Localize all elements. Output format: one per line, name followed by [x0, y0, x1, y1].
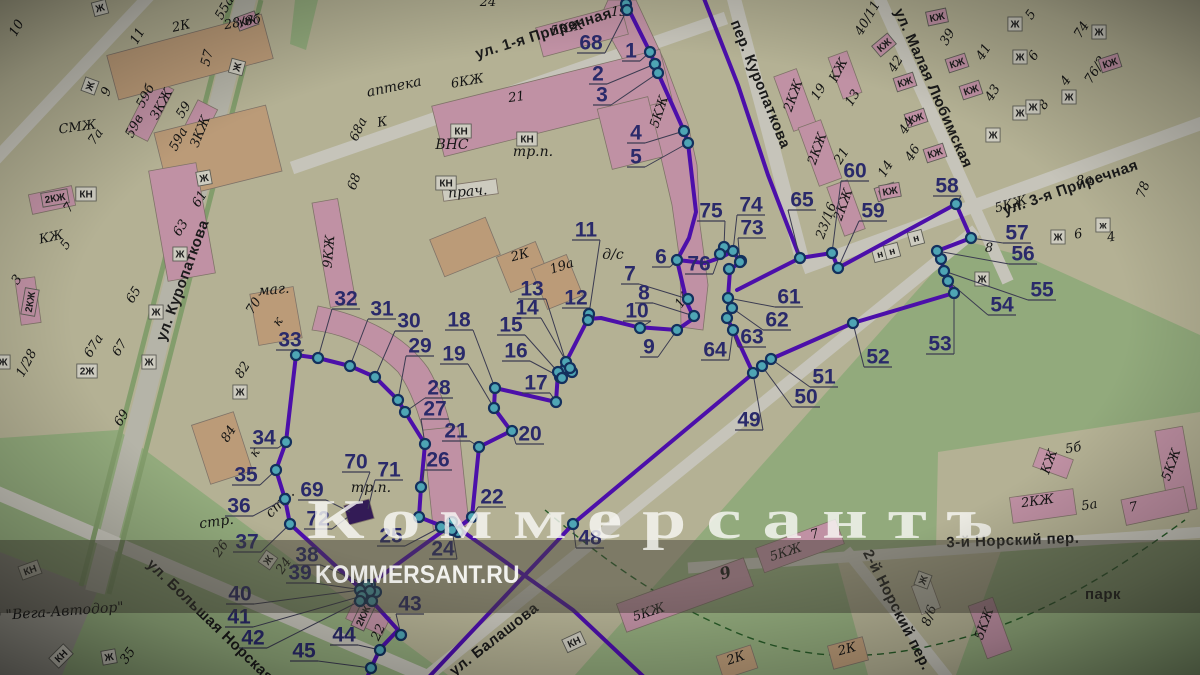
- route-point-number: 10: [625, 300, 648, 323]
- route-node: [370, 372, 380, 382]
- route-node: [645, 47, 655, 57]
- route-point-number: 17: [524, 372, 547, 395]
- route-point-number: 35: [234, 464, 258, 487]
- route-node: [414, 512, 424, 522]
- route-point-number: 19: [442, 343, 465, 366]
- route-point-number: 68: [579, 32, 603, 55]
- route-node: [757, 361, 767, 371]
- route-point-number: 27: [423, 398, 446, 421]
- route-point-number: 58: [935, 175, 959, 198]
- route-node: [474, 442, 484, 452]
- route-point-number: 40: [228, 583, 251, 606]
- house-label: Ж: [150, 308, 161, 319]
- house-number: 24: [479, 0, 497, 10]
- route-point-number: 48: [578, 527, 602, 550]
- route-point-number: 74: [739, 194, 763, 217]
- route-node: [551, 397, 561, 407]
- route-node: [683, 294, 693, 304]
- route-node: [653, 68, 663, 78]
- route-node: [724, 264, 734, 274]
- route-point-number: 51: [812, 366, 836, 389]
- route-point-number: 18: [447, 309, 471, 332]
- map-screenshot: ул. 1-я Приречнаяпер. Куропатковаул. Мал…: [0, 0, 1200, 675]
- house-label: Ж: [987, 131, 998, 142]
- route-point-number: 20: [518, 423, 541, 446]
- route-point-number: 24: [431, 538, 455, 561]
- route-point-number: 39: [288, 562, 311, 585]
- route-point-number: 29: [408, 335, 431, 358]
- route-point-number: 1: [625, 40, 637, 63]
- route-point-number: 33: [278, 329, 301, 352]
- route-node: [366, 663, 376, 673]
- route-point-number: 32: [334, 288, 357, 311]
- route-point-number: 76: [687, 253, 710, 276]
- route-point-number: 26: [426, 449, 449, 472]
- route-node: [723, 293, 733, 303]
- route-node: [436, 522, 446, 532]
- route-node: [939, 266, 949, 276]
- route-node: [489, 403, 499, 413]
- house-label: Ж: [234, 388, 245, 399]
- route-node: [291, 350, 301, 360]
- route-point-number: 22: [480, 486, 503, 509]
- route-node: [679, 126, 689, 136]
- route-point-number: 16: [504, 340, 527, 363]
- route-node: [557, 373, 567, 383]
- route-node: [400, 407, 410, 417]
- route-point-number: 11: [575, 219, 598, 242]
- route-node: [393, 395, 403, 405]
- route-point-number: 60: [843, 160, 866, 183]
- route-point-number: 5: [630, 146, 642, 169]
- route-point-number: 54: [990, 294, 1014, 317]
- route-node: [766, 354, 776, 364]
- route-point-number: 56: [1011, 243, 1034, 266]
- house-label: КН: [439, 179, 452, 190]
- route-point-number: 57: [1005, 222, 1028, 245]
- house-label: Ж: [1027, 103, 1038, 114]
- route-node: [672, 255, 682, 265]
- route-point-number: 53: [928, 333, 951, 356]
- route-point-number: 3: [596, 84, 608, 107]
- facility-label: д/с: [602, 247, 624, 263]
- route-point-number: 52: [866, 346, 889, 369]
- facility-label: маг.: [257, 281, 290, 300]
- street-name: парк: [1085, 586, 1121, 603]
- route-point-number: 72: [306, 508, 329, 531]
- house-number: 8а: [1075, 172, 1093, 190]
- route-point-number: 36: [227, 495, 250, 518]
- route-point-number: 30: [397, 310, 420, 333]
- house-number: 5а: [1080, 497, 1098, 515]
- route-point-number: 4: [630, 122, 642, 145]
- route-point-number: 43: [398, 593, 421, 616]
- route-node: [728, 325, 738, 335]
- route-point-number: 73: [740, 217, 763, 240]
- route-point-number: 65: [790, 189, 814, 212]
- house-label: 2Ж: [80, 367, 96, 378]
- route-node: [949, 288, 959, 298]
- route-node: [416, 482, 426, 492]
- route-point-number: 62: [765, 309, 788, 332]
- route-node: [396, 630, 406, 640]
- route-point-number: 42: [241, 627, 264, 650]
- route-node: [565, 363, 575, 373]
- route-node: [635, 323, 645, 333]
- route-node: [313, 353, 323, 363]
- house-label: Ж: [0, 358, 8, 369]
- route-node: [367, 596, 377, 606]
- route-node: [735, 257, 745, 267]
- route-node: [355, 596, 365, 606]
- route-point-number: 12: [564, 287, 587, 310]
- route-node: [420, 439, 430, 449]
- route-point-number: 9: [643, 336, 655, 359]
- route-node: [467, 512, 477, 522]
- facility-label: тр.п.: [351, 480, 391, 496]
- route-node: [583, 315, 593, 325]
- route-node: [672, 325, 682, 335]
- route-node: [568, 519, 578, 529]
- route-node: [285, 519, 295, 529]
- route-point-number: 21: [444, 420, 468, 443]
- route-point-number: 31: [370, 298, 394, 321]
- route-node: [689, 311, 699, 321]
- route-point-number: 69: [300, 479, 323, 502]
- facility-label: ВНС: [434, 137, 468, 153]
- route-node: [490, 383, 500, 393]
- house-label: Ж: [1052, 233, 1063, 244]
- house-label: КН: [79, 190, 92, 201]
- route-node: [271, 465, 281, 475]
- house-label: Ж: [143, 358, 154, 369]
- house-number: 8: [985, 241, 993, 256]
- route-node: [795, 253, 805, 263]
- house-number: 5б: [1064, 440, 1083, 458]
- route-node: [727, 303, 737, 313]
- house-label: Ж: [1014, 109, 1025, 120]
- route-node: [447, 525, 457, 535]
- route-node: [715, 249, 725, 259]
- house-label: Ж: [1063, 93, 1074, 104]
- route-node: [943, 276, 953, 286]
- route-point-number: 59: [861, 200, 884, 223]
- house-label: ж: [1098, 221, 1107, 232]
- house-number: 21: [506, 89, 525, 106]
- route-point-number: 37: [235, 531, 258, 554]
- house-label: КН: [454, 127, 467, 138]
- house-label: Ж: [1009, 20, 1020, 31]
- route-node: [280, 494, 290, 504]
- route-point-number: 34: [252, 427, 276, 450]
- route-node: [833, 263, 843, 273]
- route-node: [827, 248, 837, 258]
- route-node: [281, 437, 291, 447]
- route-node: [932, 246, 942, 256]
- house-label: Ж: [174, 250, 185, 261]
- route-node: [848, 318, 858, 328]
- route-node: [722, 313, 732, 323]
- route-point-number: 15: [499, 314, 523, 337]
- route-node: [622, 5, 632, 15]
- route-point-number: 70: [344, 451, 367, 474]
- route-node: [966, 233, 976, 243]
- route-point-number: 41: [227, 606, 251, 629]
- house-label: КН: [520, 135, 533, 146]
- route-point-number: 61: [777, 286, 801, 309]
- route-node: [507, 426, 517, 436]
- route-point-number: 25: [379, 525, 403, 548]
- route-point-number: 71: [377, 459, 401, 482]
- route-point-number: 50: [794, 386, 817, 409]
- route-point-number: 49: [737, 409, 760, 432]
- city-map-canvas: ул. 1-я Приречнаяпер. Куропатковаул. Мал…: [0, 0, 1200, 675]
- house-label: Ж: [1093, 28, 1104, 39]
- route-node: [951, 199, 961, 209]
- route-point-number: 28: [427, 377, 451, 400]
- house-number: 9КЖ: [321, 234, 339, 269]
- route-point-number: 44: [332, 624, 356, 647]
- route-point-number: 45: [292, 640, 316, 663]
- route-node: [683, 138, 693, 148]
- route-point-number: 63: [740, 326, 763, 349]
- route-point-number: 75: [699, 200, 723, 223]
- route-node: [345, 361, 355, 371]
- house-label: Ж: [1014, 53, 1025, 64]
- route-point-number: 7: [624, 263, 636, 286]
- route-node: [375, 645, 385, 655]
- route-point-number: 2: [592, 63, 604, 86]
- route-point-number: 55: [1030, 279, 1054, 302]
- route-node: [748, 368, 758, 378]
- route-point-number: 64: [703, 339, 727, 362]
- route-point-number: 6: [655, 246, 667, 269]
